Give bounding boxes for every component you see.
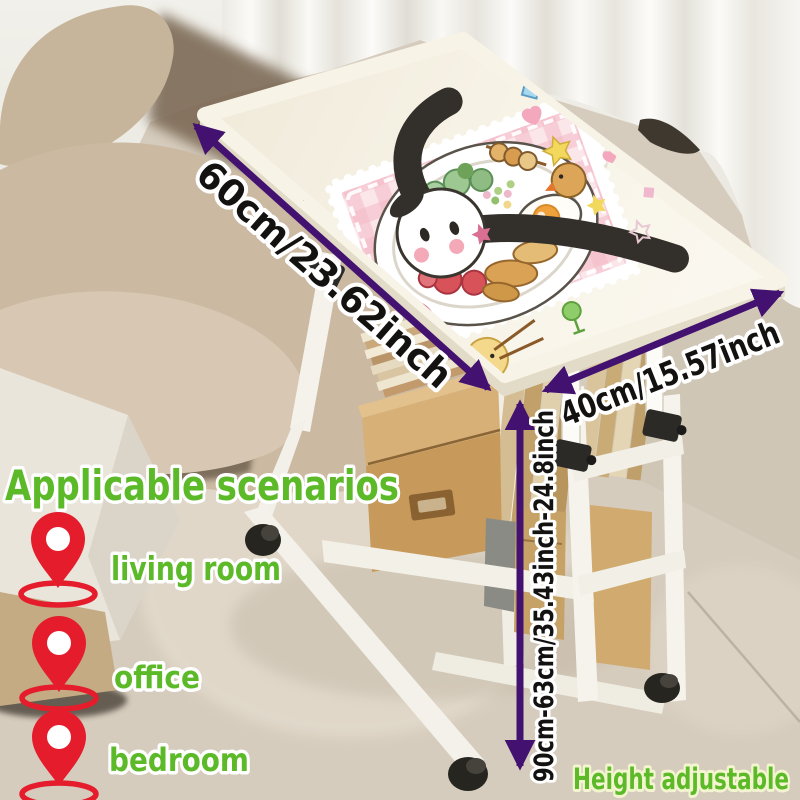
product-image: 60cm/23.62inch 40cm/15.57inch 90cm-63cm/… xyxy=(0,0,800,800)
height-adjustable-label: Height adjustable xyxy=(573,762,789,796)
scene: 60cm/23.62inch 40cm/15.57inch 90cm-63cm/… xyxy=(0,0,800,800)
caster-wheel xyxy=(448,757,488,791)
scenario-label-bedroom: bedroom xyxy=(109,741,249,779)
scenario-label-living-room: living room xyxy=(111,549,281,588)
caster-wheel xyxy=(644,673,680,703)
scenarios-heading: Applicable scenarios xyxy=(5,461,399,510)
dimension-label-height: 90cm-63cm/35.43inch-24.8inch xyxy=(529,410,560,782)
scenario-label-office: office xyxy=(114,660,200,696)
